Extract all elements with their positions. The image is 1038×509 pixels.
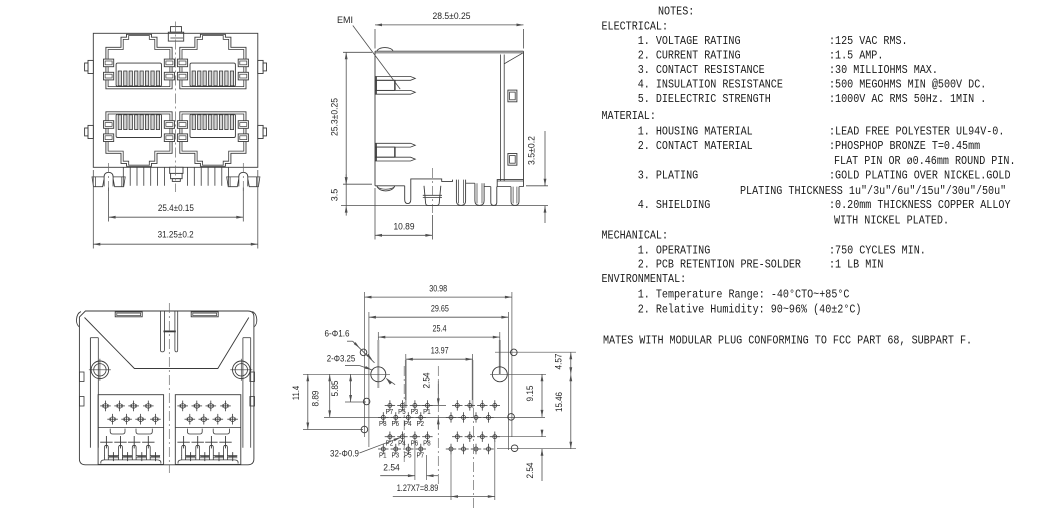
svg-text:2-Φ3.25: 2-Φ3.25 — [327, 353, 356, 363]
svg-text:25.4±0.15: 25.4±0.15 — [158, 203, 194, 213]
svg-text:1. VOLTAGE RATING: 1. VOLTAGE RATING — [638, 34, 741, 48]
svg-text:4.57: 4.57 — [554, 354, 564, 370]
svg-text:11.4: 11.4 — [291, 386, 301, 401]
svg-text::PHOSPHOP BRONZE T=0.45mm: :PHOSPHOP BRONZE T=0.45mm — [829, 139, 980, 153]
svg-text:P1: P1 — [379, 453, 387, 460]
svg-text:P7: P7 — [386, 409, 394, 416]
svg-text:3. PLATING: 3. PLATING — [638, 169, 699, 183]
svg-text:2.54: 2.54 — [525, 463, 535, 479]
svg-text::LEAD FREE POLYESTER UL94V-0.: :LEAD FREE POLYESTER UL94V-0. — [829, 125, 1004, 139]
svg-text:5. DIELECTRIC STRENGTH: 5. DIELECTRIC STRENGTH — [638, 92, 771, 106]
svg-text::1.5 AMP.: :1.5 AMP. — [829, 49, 883, 63]
svg-text:ENVIRONMENTAL:: ENVIRONMENTAL: — [602, 272, 687, 286]
svg-text:5.85: 5.85 — [330, 381, 340, 397]
svg-text:2.54: 2.54 — [422, 373, 432, 389]
svg-text:25.3±0.25: 25.3±0.25 — [330, 98, 340, 136]
svg-text:P5: P5 — [404, 453, 412, 460]
svg-text:25.4: 25.4 — [433, 323, 447, 333]
svg-text::30 MILLIOHMS MAX.: :30 MILLIOHMS MAX. — [829, 63, 938, 77]
svg-text:15.46: 15.46 — [554, 392, 564, 412]
svg-text:P6: P6 — [392, 421, 400, 428]
svg-text:MATES WITH MODULAR PLUG CONFOR: MATES WITH MODULAR PLUG CONFORMING TO FC… — [603, 334, 972, 348]
svg-text:1. Temperature Range: -40°CTO~: 1. Temperature Range: -40°CTO~+85°C — [638, 288, 850, 302]
svg-text:MECHANICAL:: MECHANICAL: — [602, 229, 669, 243]
svg-text:P1: P1 — [423, 409, 431, 416]
svg-text::750 CYCLES MIN.: :750 CYCLES MIN. — [829, 244, 926, 258]
svg-text::125 VAC RMS.: :125 VAC RMS. — [829, 34, 908, 48]
svg-text::1000V AC RMS 50Hz. 1MIN .: :1000V AC RMS 50Hz. 1MIN . — [829, 92, 986, 106]
svg-text:P7: P7 — [417, 453, 425, 460]
svg-text::1 LB MIN: :1 LB MIN — [829, 258, 883, 272]
svg-text::500 MEGOHMS MIN @500V DC.: :500 MEGOHMS MIN @500V DC. — [829, 78, 986, 92]
svg-text:1.27X7=8.89: 1.27X7=8.89 — [397, 483, 439, 493]
svg-text:2. CONTACT MATERIAL: 2. CONTACT MATERIAL — [638, 139, 753, 153]
svg-text:P8: P8 — [423, 440, 431, 447]
svg-text:NOTES:: NOTES: — [658, 5, 694, 19]
svg-text::GOLD PLATING OVER NICKEL.GOLD: :GOLD PLATING OVER NICKEL.GOLD — [829, 169, 1011, 183]
svg-text:P6: P6 — [411, 440, 419, 447]
svg-text:3. CONTACT RESISTANCE: 3. CONTACT RESISTANCE — [638, 63, 765, 77]
svg-text:9.15: 9.15 — [525, 386, 535, 402]
svg-text:2. CURRENT RATING: 2. CURRENT RATING — [638, 49, 741, 63]
svg-text:28.5±0.25: 28.5±0.25 — [433, 11, 471, 21]
svg-text:P3: P3 — [411, 409, 419, 416]
svg-text:P2: P2 — [417, 421, 425, 428]
svg-text:PLATING THICKNESS 1u"/3u"/6u"/: PLATING THICKNESS 1u"/3u"/6u"/15u"/30u"/… — [740, 184, 1006, 198]
svg-text:2.54: 2.54 — [383, 462, 400, 472]
svg-text:FLAT PIN OR ø0.46mm ROUND PIN.: FLAT PIN OR ø0.46mm ROUND PIN. — [834, 154, 1016, 168]
svg-text:WITH NICKEL PLATED.: WITH NICKEL PLATED. — [834, 214, 949, 228]
svg-text:4. SHIELDING: 4. SHIELDING — [638, 198, 711, 212]
svg-text:MATERIAL:: MATERIAL: — [602, 109, 656, 123]
svg-text:EMI: EMI — [337, 15, 353, 26]
svg-text:31.25±0.2: 31.25±0.2 — [158, 230, 194, 240]
svg-text:4. INSULATION RESISTANCE: 4. INSULATION RESISTANCE — [638, 78, 783, 92]
svg-text:29.65: 29.65 — [431, 304, 449, 314]
svg-text:2. PCB RETENTION PRE-SOLDER: 2. PCB RETENTION PRE-SOLDER — [638, 258, 801, 272]
svg-text:8.89: 8.89 — [311, 391, 321, 407]
svg-text:P5: P5 — [398, 409, 406, 416]
svg-text:32-Φ0.9: 32-Φ0.9 — [330, 449, 359, 459]
svg-text:P3: P3 — [392, 453, 400, 460]
svg-text::0.20mm THICKNESS COPPER ALLOY: :0.20mm THICKNESS COPPER ALLOY — [829, 198, 1011, 212]
svg-text:P8: P8 — [379, 421, 387, 428]
svg-text:2. Relative Humidity: 90~96% (: 2. Relative Humidity: 90~96% (40±2°C) — [638, 303, 862, 317]
svg-text:1. HOUSING MATERIAL: 1. HOUSING MATERIAL — [638, 125, 753, 139]
svg-text:1. OPERATING: 1. OPERATING — [638, 244, 711, 258]
svg-text:P4: P4 — [398, 440, 406, 447]
svg-text:10.89: 10.89 — [394, 221, 415, 231]
svg-text:3.5±0.2: 3.5±0.2 — [527, 136, 537, 165]
svg-text:P4: P4 — [404, 421, 412, 428]
svg-text:6-Φ1.6: 6-Φ1.6 — [325, 329, 350, 339]
svg-text:3.5: 3.5 — [330, 189, 340, 202]
svg-text:30.98: 30.98 — [429, 283, 447, 293]
svg-text:ELECTRICAL:: ELECTRICAL: — [602, 20, 669, 34]
svg-text:13.97: 13.97 — [431, 345, 449, 355]
